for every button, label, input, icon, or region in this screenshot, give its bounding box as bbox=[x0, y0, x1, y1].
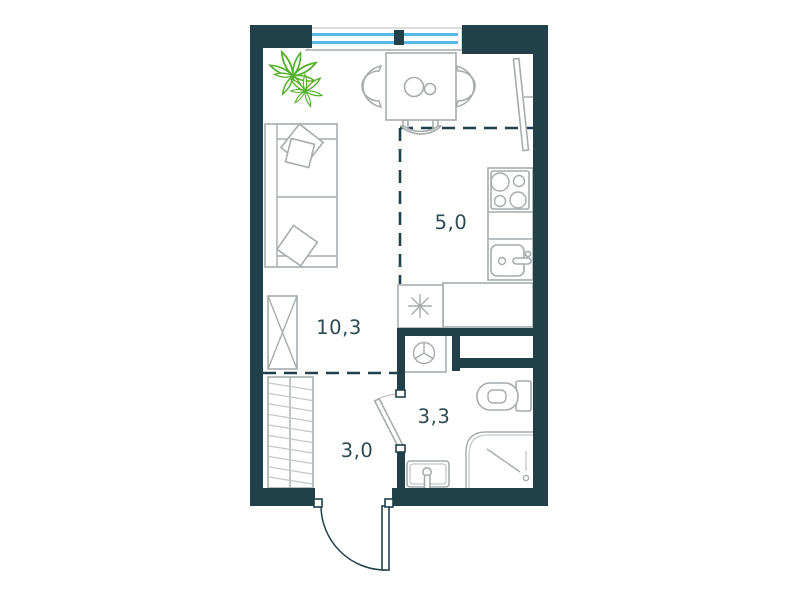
wall-bottom-right bbox=[392, 488, 548, 506]
fridge bbox=[398, 285, 443, 328]
wall-bathroom-left-lower bbox=[397, 452, 405, 488]
floor-plan: 10,3 5,0 3,0 3,3 bbox=[0, 0, 800, 600]
window-glass-line bbox=[311, 33, 458, 36]
window bbox=[305, 28, 465, 50]
ventilation-shaft bbox=[460, 336, 533, 358]
toilet bbox=[477, 381, 531, 411]
washing-machine bbox=[404, 335, 446, 372]
plate-icon bbox=[405, 78, 424, 97]
faucet bbox=[425, 475, 431, 489]
wardrobe bbox=[268, 296, 297, 369]
fridge-snowflake-icon bbox=[408, 294, 432, 318]
window-mullion bbox=[394, 30, 404, 45]
door-leaf bbox=[382, 506, 389, 570]
wall-bottom-left bbox=[250, 488, 315, 506]
wall-bathroom-left-upper bbox=[397, 330, 405, 390]
faucet bbox=[513, 258, 531, 264]
area-label-kitchen: 5,0 bbox=[435, 211, 468, 234]
floor-plan-canvas: 10,3 5,0 3,0 3,3 bbox=[0, 0, 800, 600]
area-label-living: 10,3 bbox=[316, 316, 362, 339]
wall-right bbox=[533, 25, 548, 506]
window-glass-line bbox=[311, 41, 458, 44]
window-frame bbox=[308, 28, 462, 50]
faucet-knob bbox=[525, 251, 530, 256]
wall-left bbox=[250, 25, 263, 506]
wall-top-left bbox=[250, 25, 312, 48]
kitchen-counter-bottom bbox=[443, 283, 533, 327]
stove-burners bbox=[491, 171, 529, 209]
sofa bbox=[265, 124, 337, 267]
door-post bbox=[314, 499, 322, 507]
area-label-bathroom: 3,3 bbox=[418, 405, 451, 428]
wall-shaft-divider bbox=[452, 334, 460, 371]
plate-icon bbox=[425, 84, 436, 95]
coat-closet-hangers bbox=[268, 377, 313, 488]
wall-shaft-bottom bbox=[460, 358, 533, 368]
area-label-hallway: 3,0 bbox=[341, 439, 374, 462]
kitchen-counter-right bbox=[488, 168, 533, 280]
door-post bbox=[385, 499, 393, 507]
door-post bbox=[396, 445, 405, 452]
wall-bathroom-top bbox=[397, 328, 533, 336]
bathroom-sink bbox=[407, 461, 449, 489]
door-post bbox=[396, 390, 405, 397]
